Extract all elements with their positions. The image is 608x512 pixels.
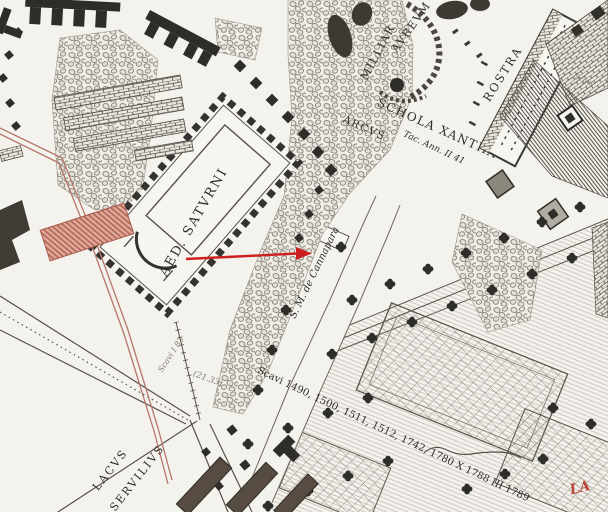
forum-map-canvas: AED. SATVRNI: [0, 0, 608, 512]
milliarium-dot: [390, 78, 404, 92]
map-view: AED. SATVRNI: [0, 0, 608, 512]
